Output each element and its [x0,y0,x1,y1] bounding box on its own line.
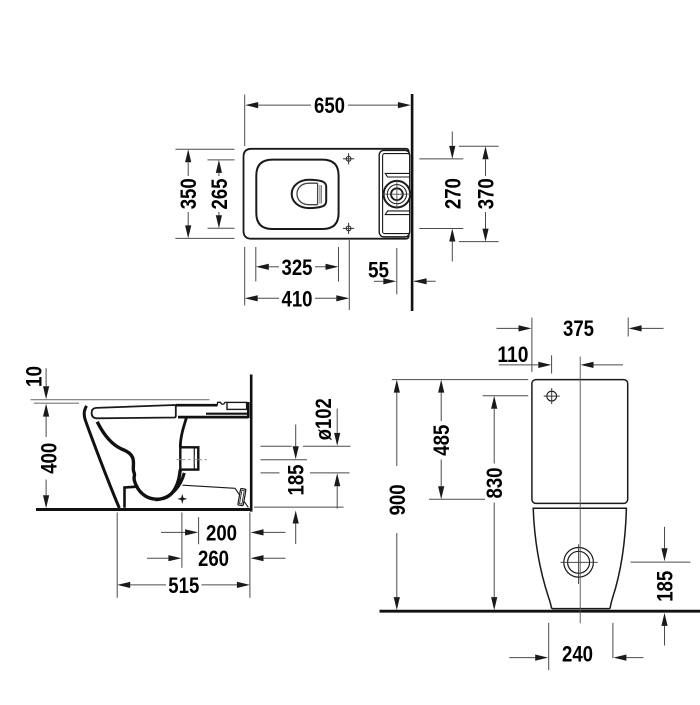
svg-text:410: 410 [282,286,313,311]
svg-text:260: 260 [198,546,229,571]
svg-text:900: 900 [385,484,410,515]
svg-text:240: 240 [562,642,593,667]
svg-text:515: 515 [168,573,199,598]
svg-text:185: 185 [653,571,678,602]
svg-text:200: 200 [206,520,237,545]
svg-text:ø102: ø102 [311,398,336,440]
svg-text:10: 10 [22,366,47,387]
svg-text:325: 325 [282,255,313,280]
svg-text:55: 55 [368,257,389,282]
svg-text:400: 400 [37,443,62,474]
svg-text:375: 375 [563,316,594,341]
svg-text:110: 110 [497,342,528,367]
svg-text:485: 485 [429,425,454,456]
svg-text:185: 185 [284,465,309,496]
svg-text:830: 830 [482,468,507,499]
svg-text:650: 650 [314,93,345,118]
svg-text:270: 270 [440,178,465,209]
svg-text:350: 350 [176,178,201,209]
svg-text:265: 265 [207,179,232,210]
svg-text:370: 370 [474,178,499,209]
